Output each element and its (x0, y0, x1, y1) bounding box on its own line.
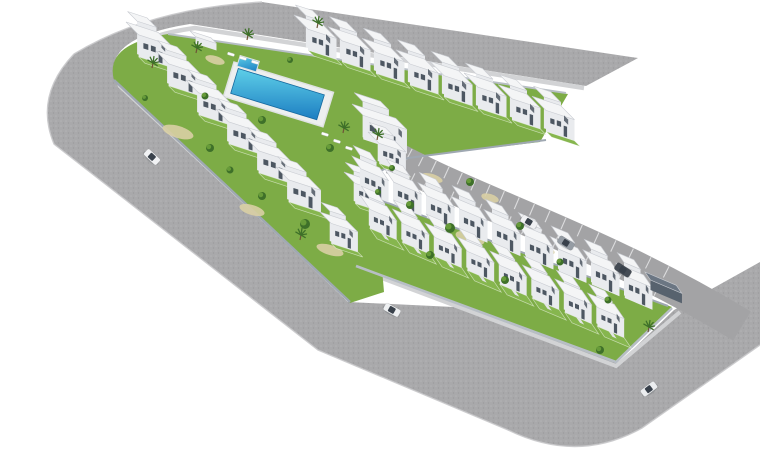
bush-highlight (202, 93, 206, 97)
bush-highlight (605, 297, 609, 301)
bush-highlight (406, 201, 411, 206)
door (484, 267, 487, 278)
door (348, 238, 351, 249)
door (564, 126, 567, 138)
door (496, 102, 499, 114)
bush-highlight (557, 259, 561, 263)
bush-highlight (227, 167, 231, 171)
door (419, 239, 422, 250)
door (444, 213, 447, 225)
bush-highlight (258, 192, 263, 197)
door (360, 56, 363, 68)
door (510, 240, 513, 252)
bush-highlight (389, 165, 393, 169)
door (451, 253, 454, 264)
bush-highlight (287, 57, 291, 61)
site-plan-3d-render (0, 0, 760, 465)
door (516, 281, 519, 292)
bush-highlight (596, 346, 601, 351)
bush-highlight (446, 224, 452, 230)
bush-highlight (258, 116, 263, 121)
bush-highlight (206, 144, 211, 149)
door (576, 266, 579, 278)
door (309, 196, 313, 208)
door (609, 280, 612, 292)
bush-highlight (516, 222, 521, 227)
door (326, 44, 329, 56)
door (386, 225, 389, 236)
door (614, 323, 617, 334)
door (581, 309, 584, 320)
door (642, 293, 645, 305)
bush-highlight (142, 95, 146, 99)
bush-highlight (501, 276, 506, 281)
bush-highlight (301, 220, 307, 226)
bush-highlight (375, 189, 379, 193)
door (394, 68, 397, 80)
door (462, 91, 465, 103)
door (428, 79, 431, 91)
render-canvas (0, 0, 760, 465)
door (530, 114, 533, 126)
bush-highlight (326, 144, 331, 149)
door (477, 226, 480, 238)
bush-highlight (426, 251, 431, 256)
bush-highlight (466, 178, 471, 183)
door (543, 253, 546, 265)
door (549, 295, 552, 306)
